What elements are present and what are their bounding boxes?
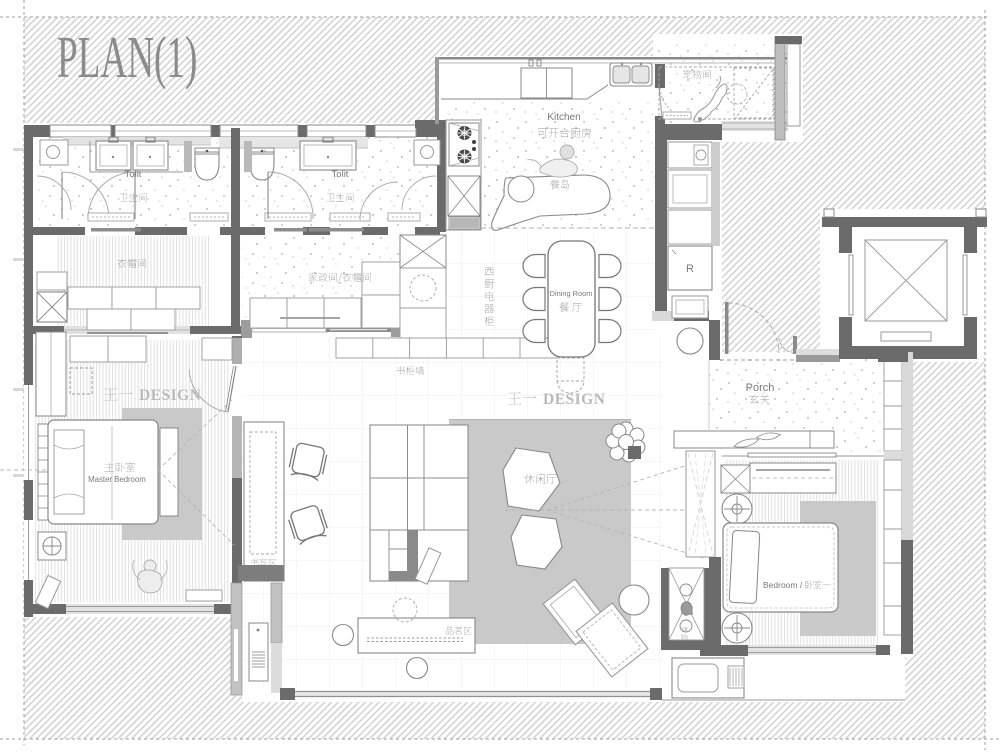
svg-text:DESIGN: DESIGN	[139, 387, 201, 404]
svg-text:Tolit: Tolit	[125, 169, 142, 180]
svg-text:Bedroom /: Bedroom /	[763, 580, 803, 590]
svg-text:Kitchen: Kitchen	[547, 112, 580, 123]
svg-text:Porch: Porch	[746, 382, 775, 394]
svg-text:Tolit: Tolit	[332, 169, 349, 180]
svg-text:Master Bedroom: Master Bedroom	[88, 475, 146, 484]
svg-text:R: R	[686, 263, 694, 275]
svg-text:PLAN(1): PLAN(1)	[57, 24, 197, 90]
svg-text:DESIGN: DESIGN	[543, 391, 605, 408]
svg-text:Dining Room: Dining Room	[550, 289, 593, 298]
